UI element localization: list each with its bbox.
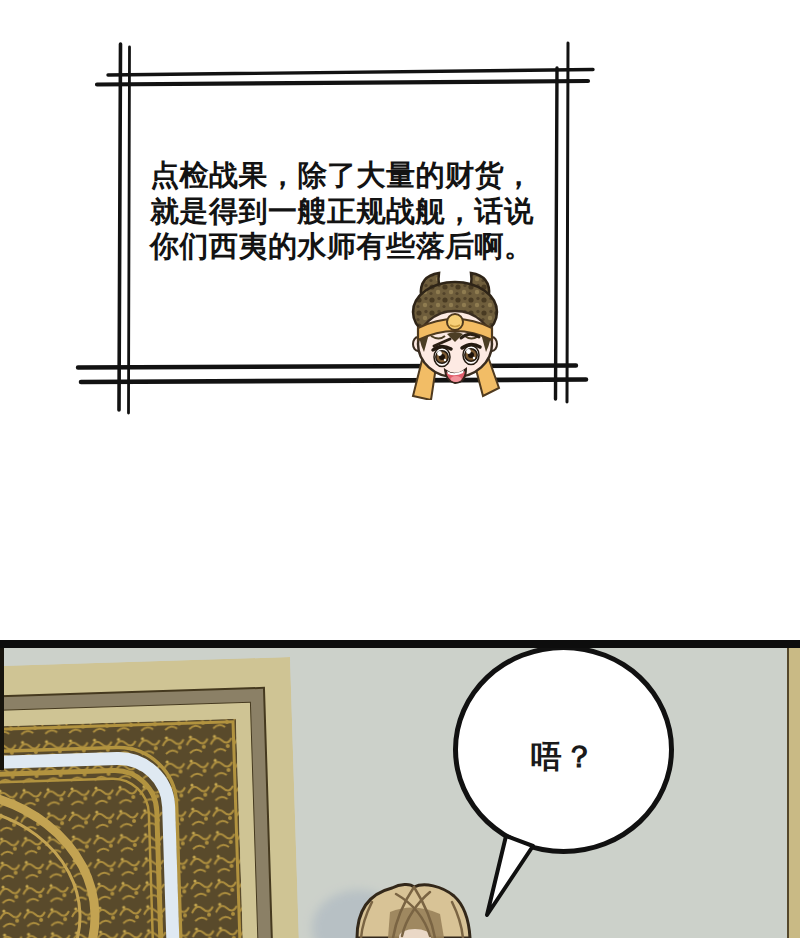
chibi-narrator-icon xyxy=(403,270,507,400)
panel-narration: 点检战果，除了大量的财货， 就是得到一艘正规战舰，话说 你们西夷的水师有些落后啊… xyxy=(0,0,800,440)
narration-line-1: 点检战果，除了大量的财货， xyxy=(150,158,534,194)
headband-medallion xyxy=(447,314,463,330)
narration-text-block: 点检战果，除了大量的财货， 就是得到一艘正规战舰，话说 你们西夷的水师有些落后啊… xyxy=(150,158,534,265)
comic-page: 点检战果，除了大量的财货， 就是得到一艘正规战舰，话说 你们西夷的水师有些落后啊… xyxy=(0,0,800,938)
narration-line-3: 你们西夷的水师有些落后啊。 xyxy=(150,229,534,265)
panel-divider-bar xyxy=(0,640,800,648)
speech-bubble-tail-icon xyxy=(0,640,800,938)
panel-scene: 唔？ xyxy=(0,640,800,938)
narration-line-2: 就是得到一艘正规战舰，话说 xyxy=(150,194,534,230)
